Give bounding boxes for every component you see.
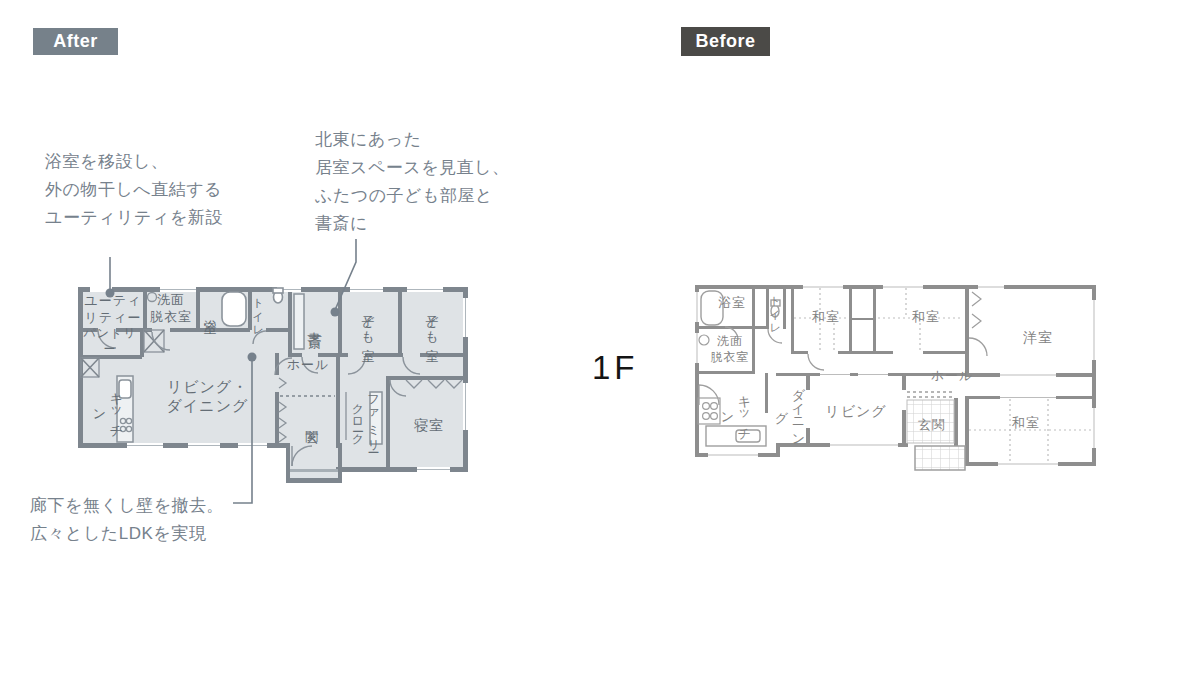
after-room-entrance: 玄関 <box>303 400 319 442</box>
before-room-kitchen: キッチン <box>726 380 744 442</box>
after-room-pantry: パントリー <box>78 334 142 350</box>
after-room-utility: ユーティ リティー <box>82 294 144 326</box>
after-room-family-closet: ファミリー クローク <box>348 375 382 459</box>
before-room-japanese-3: 和室 <box>1006 414 1046 432</box>
before-room-dining: ダイニング <box>780 372 798 448</box>
after-room-kids-1: 子ども室 <box>358 292 376 352</box>
after-room-kids-2: 子ども室 <box>422 292 440 352</box>
after-room-washroom: 洗面 脱衣室 <box>146 292 196 326</box>
before-room-hall: ホール <box>928 368 976 384</box>
before-badge: Before <box>681 27 770 56</box>
before-room-living: リビング <box>824 402 888 420</box>
after-room-kitchen: キッチン <box>98 378 116 438</box>
after-room-bathroom: 浴室 <box>200 290 218 330</box>
annotation-kids-note: 北東にあった 居室スペースを見直し、 ふたつの子ども部屋と 書斎に <box>315 126 510 238</box>
after-room-living-dining: リビング・ ダイニング <box>155 378 260 414</box>
annotation-utility-note: 浴室を移設し、 外の物干しへ直結する ユーティリティを新設 <box>45 148 223 232</box>
after-room-hall: ホール <box>283 357 333 373</box>
before-room-western: 洋室 <box>1018 328 1058 346</box>
before-room-washroom: 洗面 脱衣室 <box>704 333 756 367</box>
annotation-ldk-note: 廊下を無くし壁を撤去。 広々としたLDKを実現 <box>30 492 224 548</box>
after-floor-plan: ユーティ リティー 洗面 脱衣室 浴室 トイレ パントリー キッチン リビング・… <box>70 280 470 490</box>
before-room-entrance: 玄関 <box>910 416 954 434</box>
before-room-japanese-2: 和室 <box>906 308 946 326</box>
before-room-bathroom: 浴室 <box>712 294 752 312</box>
before-room-japanese-1: 和室 <box>806 308 846 326</box>
after-badge: After <box>33 28 118 55</box>
before-floor-plan: 浴室 トイレ 和室 和室 洋室 洗面 脱衣室 キッチン ダイニング リビング ホ… <box>688 278 1108 488</box>
page: After Before 浴室を移設し、 外の物干しへ直結する ユーティリティを… <box>0 0 1200 700</box>
after-room-study: 書斎 <box>306 296 324 348</box>
after-room-bedroom: 寝室 <box>400 416 458 434</box>
before-room-toilet: トイレ <box>768 286 782 330</box>
after-room-toilet: トイレ <box>251 289 265 331</box>
floor-label: 1F <box>592 349 639 387</box>
